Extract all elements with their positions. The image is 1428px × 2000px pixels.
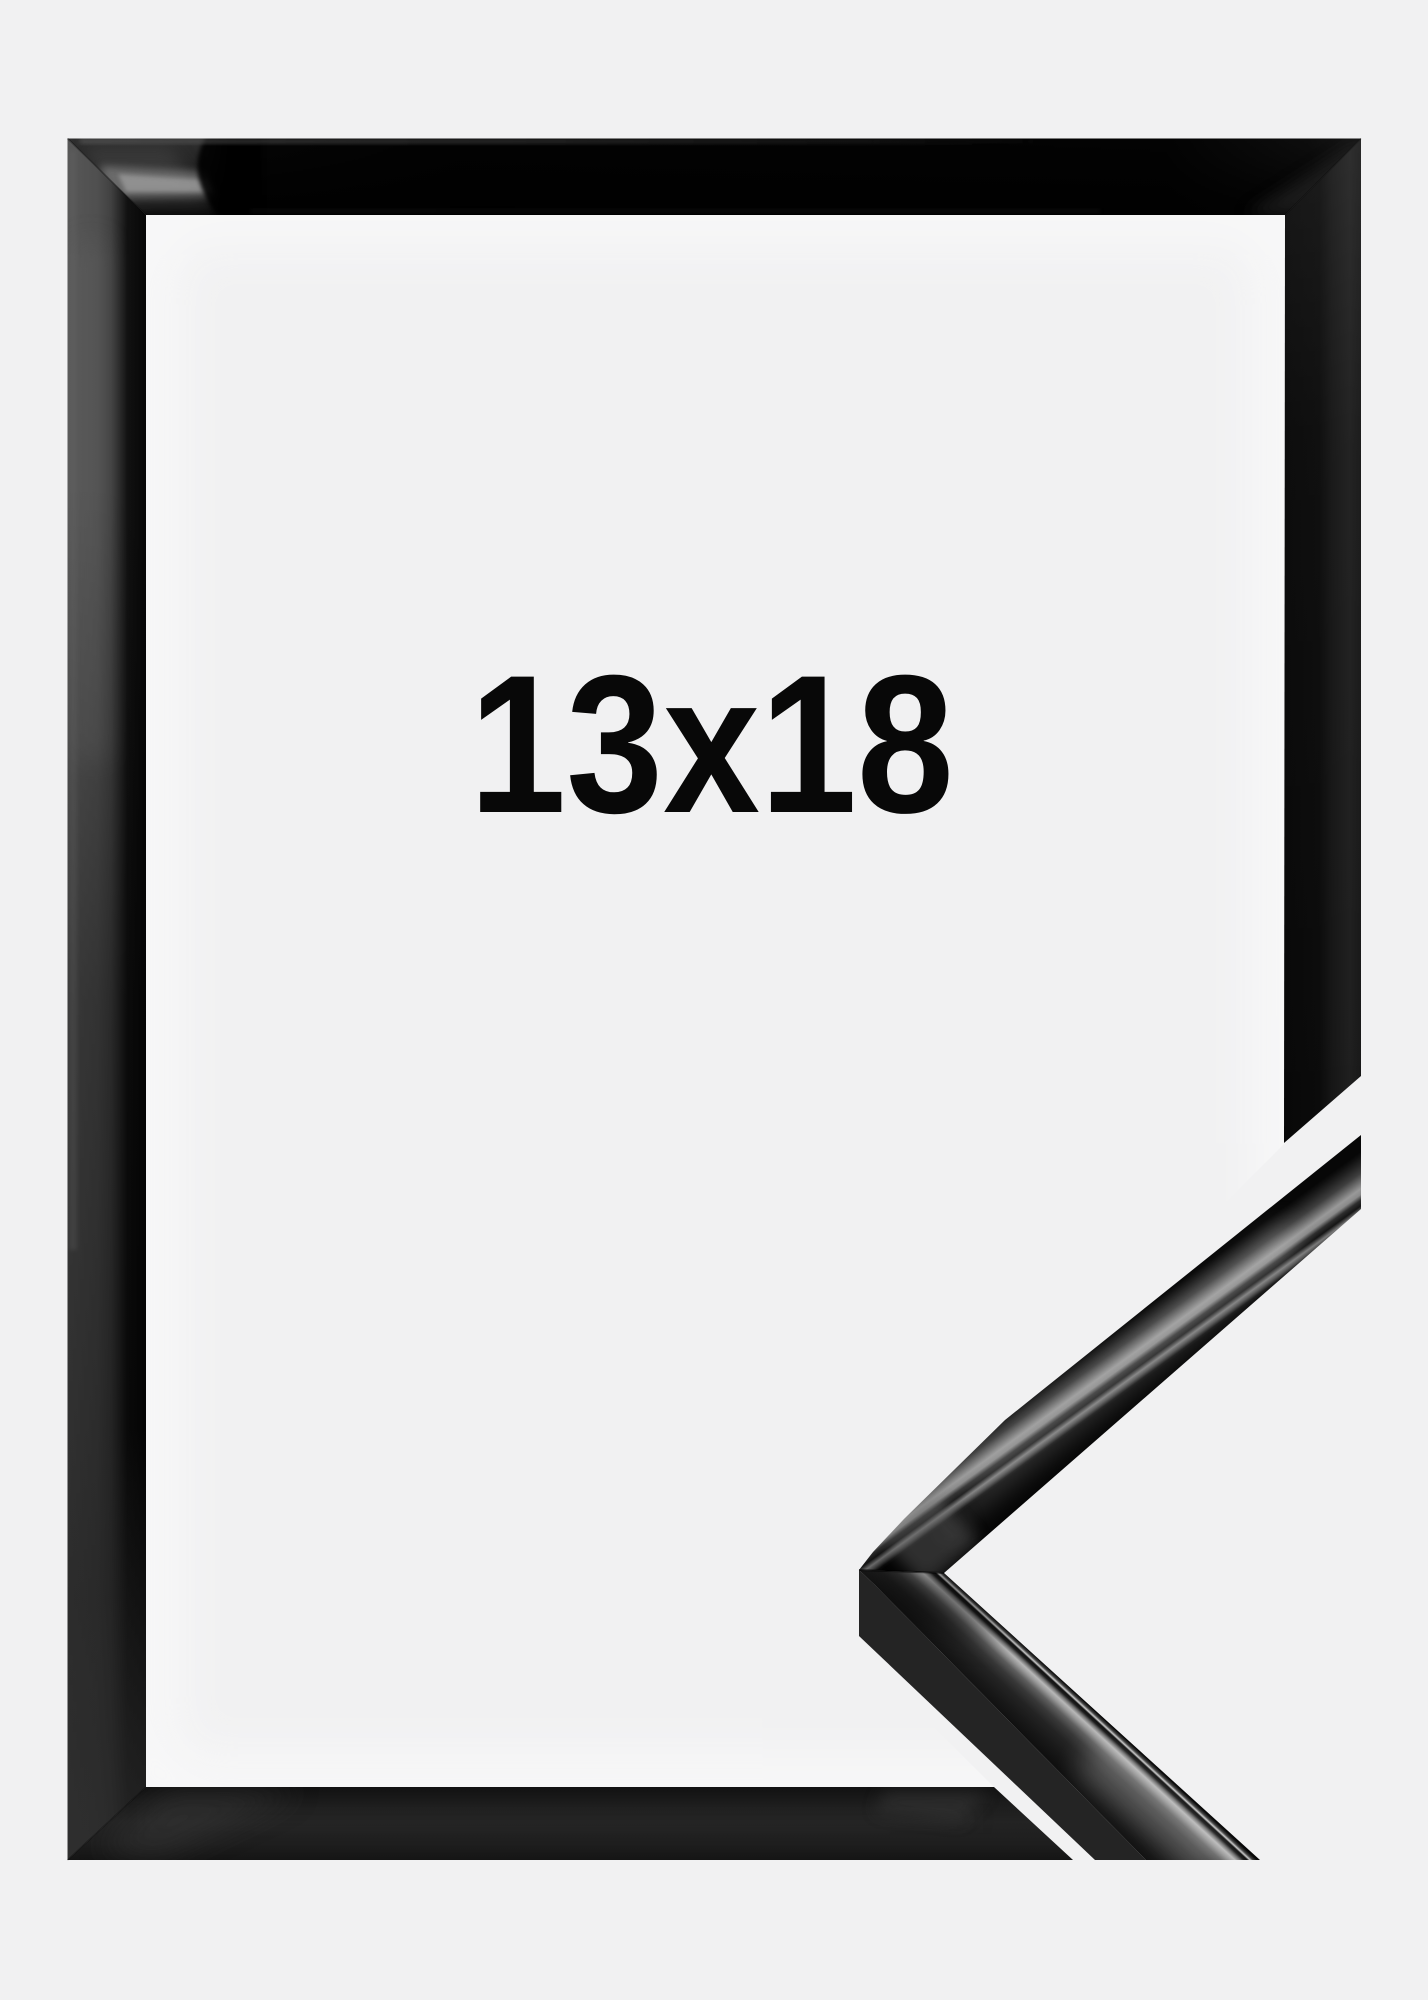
svg-text:13x18: 13x18 bbox=[469, 635, 954, 854]
